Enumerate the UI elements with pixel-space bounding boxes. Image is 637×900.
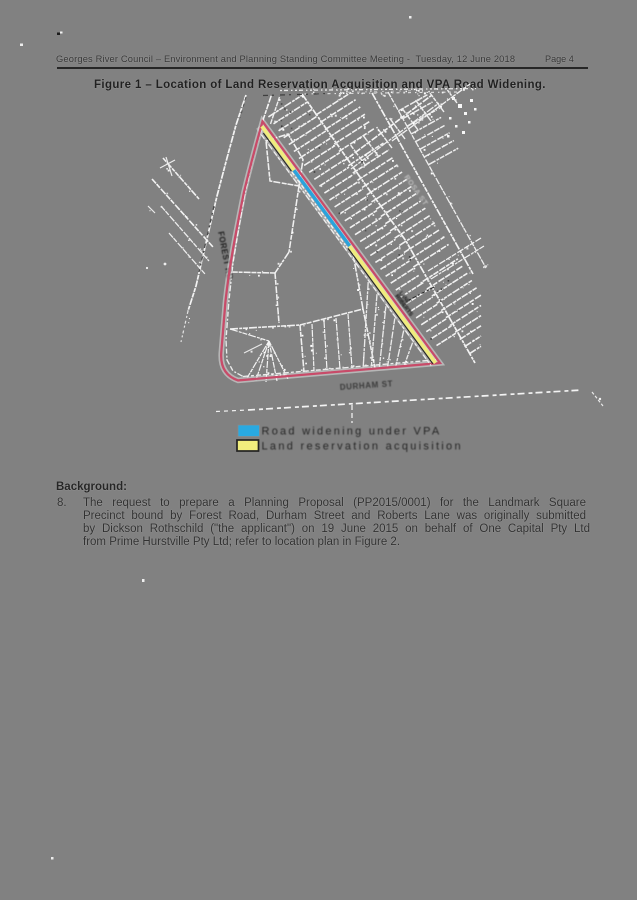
svg-text:DURHAM ST: DURHAM ST (340, 379, 394, 392)
svg-text:Road widening under VPA: Road widening under VPA (262, 426, 442, 438)
svg-text:Land reservation acquisition: Land reservation acquisition (262, 441, 463, 453)
